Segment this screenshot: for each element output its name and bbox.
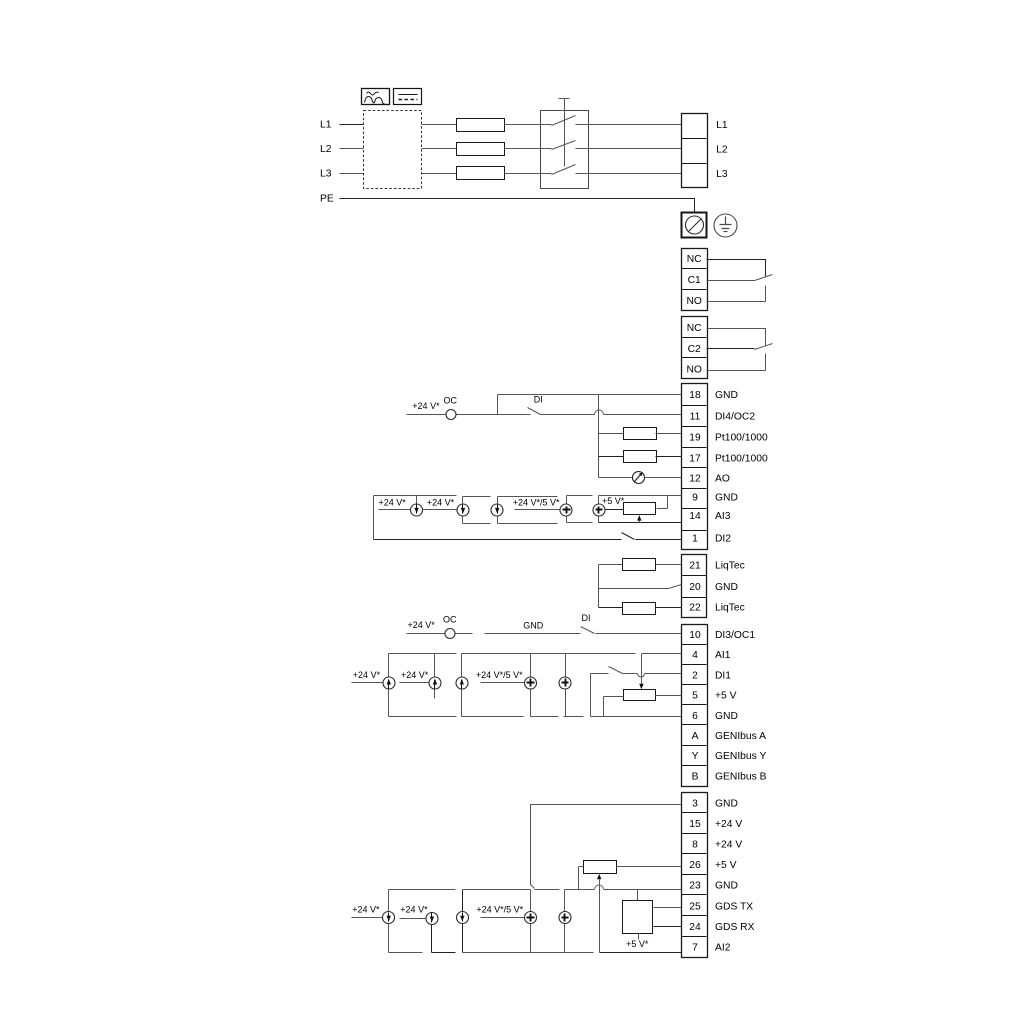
svg-text:GND: GND: [715, 582, 738, 593]
svg-text:DI4/OC2: DI4/OC2: [715, 411, 755, 422]
svg-text:+24 V: +24 V: [715, 840, 742, 851]
svg-text:B: B: [692, 771, 699, 782]
svg-text:GENIbus Y: GENIbus Y: [715, 751, 766, 762]
svg-text:L1: L1: [716, 120, 728, 131]
svg-text:22: 22: [689, 602, 701, 613]
svg-text:+24 V*/5 V*: +24 V*/5 V*: [476, 670, 523, 680]
svg-text:+24 V*: +24 V*: [401, 670, 429, 680]
svg-text:L2: L2: [320, 144, 332, 155]
svg-text:GND: GND: [715, 390, 738, 401]
svg-text:DI: DI: [534, 395, 543, 405]
svg-text:DI3/OC1: DI3/OC1: [715, 630, 755, 641]
svg-text:GND: GND: [715, 881, 738, 892]
svg-text:GND: GND: [715, 798, 738, 809]
svg-text:1: 1: [692, 534, 698, 545]
svg-text:8: 8: [692, 840, 698, 851]
svg-text:23: 23: [689, 881, 701, 892]
svg-text:+5 V: +5 V: [715, 691, 737, 702]
svg-text:15: 15: [689, 819, 701, 830]
svg-text:+24 V*: +24 V*: [412, 401, 440, 411]
svg-text:21: 21: [689, 561, 701, 572]
svg-text:+24 V*/5 V*: +24 V*/5 V*: [476, 905, 523, 915]
svg-text:2: 2: [692, 670, 698, 681]
svg-text:4: 4: [692, 650, 698, 661]
svg-text:OC: OC: [444, 396, 458, 406]
svg-text:7: 7: [692, 943, 698, 954]
svg-text:DI: DI: [582, 613, 591, 623]
svg-text:DI1: DI1: [715, 670, 731, 681]
svg-text:GDS RX: GDS RX: [715, 922, 755, 933]
svg-text:AI2: AI2: [715, 943, 731, 954]
svg-text:Pt100/1000: Pt100/1000: [715, 453, 768, 464]
svg-text:+24 V*/5 V*: +24 V*/5 V*: [513, 498, 560, 508]
svg-text:L3: L3: [320, 169, 332, 180]
svg-text:25: 25: [689, 901, 701, 912]
svg-text:10: 10: [689, 630, 701, 641]
svg-text:NC: NC: [687, 323, 702, 334]
svg-text:GND: GND: [715, 493, 738, 504]
svg-text:9: 9: [692, 493, 698, 504]
svg-text:OC: OC: [443, 615, 457, 625]
svg-text:20: 20: [689, 582, 701, 593]
svg-text:14: 14: [689, 511, 701, 522]
svg-text:C1: C1: [688, 275, 701, 286]
svg-text:+24 V*: +24 V*: [408, 620, 436, 630]
svg-text:LiqTec: LiqTec: [715, 602, 745, 613]
svg-text:12: 12: [689, 474, 701, 485]
svg-text:+24 V*: +24 V*: [400, 905, 428, 915]
svg-text:GND: GND: [523, 621, 544, 631]
svg-text:L2: L2: [716, 144, 728, 155]
svg-text:+24 V*: +24 V*: [379, 498, 407, 508]
svg-text:+5 V*: +5 V*: [626, 939, 649, 949]
svg-text:+24 V*: +24 V*: [353, 670, 381, 680]
svg-text:17: 17: [689, 453, 701, 464]
svg-text:6: 6: [692, 711, 698, 722]
svg-text:C2: C2: [688, 344, 701, 355]
svg-text:+5 V: +5 V: [715, 860, 737, 871]
svg-text:19: 19: [689, 433, 701, 444]
svg-text:18: 18: [689, 390, 701, 401]
svg-text:NC: NC: [687, 254, 702, 265]
svg-text:L1: L1: [320, 120, 332, 131]
svg-text:AI3: AI3: [715, 511, 731, 522]
svg-text:GDS TX: GDS TX: [715, 901, 753, 912]
svg-text:11: 11: [690, 411, 701, 422]
svg-text:AO: AO: [715, 474, 730, 485]
svg-text:NO: NO: [686, 365, 701, 376]
svg-text:3: 3: [692, 798, 698, 809]
svg-text:+24 V*: +24 V*: [427, 498, 455, 508]
svg-text:+24 V: +24 V: [715, 819, 742, 830]
svg-text:PE: PE: [320, 194, 334, 205]
svg-text:5: 5: [692, 691, 698, 702]
svg-text:GENIbus B: GENIbus B: [715, 771, 767, 782]
svg-text:24: 24: [689, 922, 701, 933]
svg-text:L3: L3: [716, 169, 728, 180]
svg-text:Pt100/1000: Pt100/1000: [715, 433, 768, 444]
svg-text:Y: Y: [692, 751, 699, 762]
svg-text:GND: GND: [715, 711, 738, 722]
svg-text:GENIbus A: GENIbus A: [715, 731, 766, 742]
svg-text:A: A: [692, 731, 699, 742]
svg-text:LiqTec: LiqTec: [715, 561, 745, 572]
svg-text:DI2: DI2: [715, 534, 731, 545]
svg-text:AI1: AI1: [715, 650, 731, 661]
svg-text:+24 V*: +24 V*: [352, 905, 380, 915]
svg-text:+5 V*: +5 V*: [602, 496, 625, 506]
svg-text:26: 26: [689, 860, 701, 871]
svg-text:NO: NO: [686, 296, 701, 307]
